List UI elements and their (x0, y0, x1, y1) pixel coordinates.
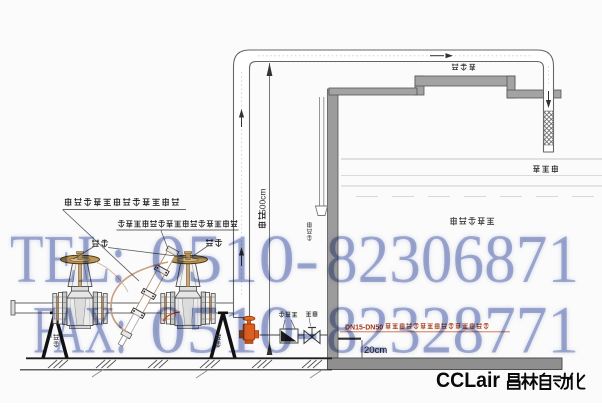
svg-text:TEL:: TEL: (10, 221, 126, 297)
svg-text:0510-: 0510- (150, 221, 319, 297)
svg-text:500cm: 500cm (258, 188, 268, 214)
svg-text:CCLair: CCLair (436, 368, 501, 392)
svg-text:FAX:: FAX: (33, 292, 127, 368)
svg-text:82328771: 82328771 (326, 292, 579, 368)
svg-text:0510-: 0510- (150, 292, 319, 368)
svg-text:82306871: 82306871 (326, 221, 579, 297)
